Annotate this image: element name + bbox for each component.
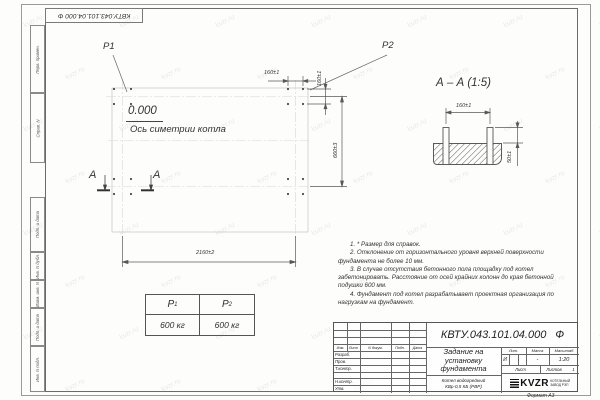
tb-sheet-label: Лист bbox=[501, 365, 540, 373]
tb-row-tkontr: Т.контр. bbox=[335, 365, 360, 372]
section-letter-left: А bbox=[89, 169, 96, 181]
tb-col-ndokum: N докум. bbox=[360, 344, 391, 351]
margin-box-inv-dubl: Инв. N дубл. bbox=[30, 252, 45, 280]
load-table-header-p2: P2 bbox=[200, 295, 254, 315]
tb-col-list: Лист bbox=[347, 344, 360, 351]
load-table: P1 P2 600 кг 600 кг bbox=[145, 294, 255, 336]
tb-mass-value: - bbox=[526, 354, 549, 365]
margin-label: Справ. N bbox=[35, 119, 40, 137]
note-1: 1. * Размер для справок. bbox=[338, 241, 580, 249]
tb-col-data: Дата bbox=[409, 344, 426, 351]
concrete-pad-hatched bbox=[433, 143, 502, 165]
kvzr-logo-text: KVZR bbox=[520, 378, 548, 389]
tb-doc-title-line: фундамента bbox=[440, 365, 486, 374]
margin-label: Подп. и дата bbox=[35, 211, 40, 238]
tb-sheets-label: Листов bbox=[540, 365, 568, 373]
tb-lit-value: И bbox=[501, 354, 509, 365]
tb-product-line: КВр-0,5 КБ (РВР) bbox=[445, 384, 482, 390]
format-label: Формат А3 bbox=[527, 393, 554, 399]
tb-mass-header: Масса bbox=[526, 347, 549, 354]
kvzr-caption-line: ЗАВОД РЭП bbox=[550, 383, 570, 387]
note-3: 3. В случае отсутствия бетонного пола пл… bbox=[338, 266, 580, 291]
margin-label: Взам. инв. N bbox=[35, 281, 40, 306]
symmetry-axis-label: Ось симетрии котла bbox=[130, 124, 226, 135]
margin-label: Инв. N подл. bbox=[35, 356, 40, 381]
load-point-p2-label: P2 bbox=[382, 40, 394, 51]
dim-bolt-spacing-h: 160±1 bbox=[264, 70, 279, 76]
tb-doc-title: Задание на установку фундамента bbox=[426, 348, 501, 374]
load-table-header-p1: P1 bbox=[146, 295, 200, 315]
drawing-sheet: kvzr.rukvzr.rukvzr.rukvzr.rukvzr.rukvzr.… bbox=[0, 0, 600, 400]
tb-row-prov: Пров. bbox=[335, 358, 360, 365]
level-mark: 0.000 bbox=[128, 105, 157, 117]
margin-box-sprav-n: Справ. N bbox=[30, 93, 45, 163]
dim-section-bolt-height: 50±1 bbox=[507, 151, 513, 163]
margin-box-perv-primen: Перв. примен. bbox=[30, 25, 45, 93]
top-designation-text: КВТУ.043.101.04.000 Ф bbox=[58, 12, 130, 19]
tb-col-podp: Подп. bbox=[391, 344, 409, 351]
tb-designation: КВТУ.043.101.04.000 Ф bbox=[426, 324, 579, 346]
tb-company-logo: KVZR КОТЕЛЬНЫЙ ЗАВОД РЭП bbox=[501, 373, 579, 393]
dim-section-bolt-spacing: 160±1 bbox=[456, 103, 471, 109]
p-sub: 1 bbox=[174, 302, 177, 308]
tb-product-name: Котел водогрейный КВр-0,5 КБ (РВР) bbox=[426, 376, 501, 392]
margin-label: Инв. N дубл. bbox=[35, 254, 40, 279]
note-2: 2. Отклонение от горизонтального уровня … bbox=[338, 249, 580, 266]
section-view-title: А – А (1:5) bbox=[436, 77, 491, 89]
margin-box-podp-data-1: Подп. и дата bbox=[30, 197, 45, 252]
margin-box-inv-podl: Инв. N подл. bbox=[30, 346, 45, 392]
tb-scale-value: 1:20 bbox=[549, 354, 579, 365]
dim-col-spacing: 2160±2 bbox=[196, 250, 214, 256]
title-block: Изм. Лист N докум. Подп. Дата Разраб. Пр… bbox=[333, 322, 578, 392]
tb-col-izm: Изм. bbox=[334, 344, 347, 351]
load-table-value-p2: 600 кг bbox=[200, 315, 254, 335]
section-letter-right: А bbox=[153, 169, 160, 181]
tb-sheets-value: 1 bbox=[568, 365, 579, 373]
tb-row-razrab: Разраб. bbox=[335, 351, 360, 358]
top-designation-box: КВТУ.043.101.04.000 Ф bbox=[45, 8, 143, 23]
note-4: 4. Фундамент под котел разрабатывает про… bbox=[338, 291, 580, 308]
margin-box-vzam-inv: Взам. инв. N bbox=[30, 280, 45, 308]
dim-row-spacing: 660±3 bbox=[333, 143, 339, 158]
tb-lit-header: Лит. bbox=[501, 347, 526, 354]
load-point-p1-label: P1 bbox=[103, 41, 115, 52]
tb-row-utv: Утв. bbox=[335, 385, 360, 392]
margin-label: Перв. примен. bbox=[35, 45, 40, 74]
kvzr-logo-caption: КОТЕЛЬНЫЙ ЗАВОД РЭП bbox=[550, 379, 570, 387]
dim-bolt-spacing-v: 160±1 bbox=[317, 71, 323, 86]
tb-scale-header: Масштаб bbox=[549, 347, 579, 354]
margin-box-podp-data-2: Подп. и дата bbox=[30, 308, 45, 346]
p-base: P bbox=[167, 299, 174, 310]
p-base: P bbox=[222, 299, 229, 310]
notes-block: 1. * Размер для справок. 2. Отклонение о… bbox=[338, 241, 580, 307]
load-table-value-p1: 600 кг bbox=[146, 315, 200, 335]
margin-label: Подп. и дата bbox=[35, 314, 40, 341]
tb-row-nkontr: Н.контр. bbox=[335, 378, 360, 385]
kvzr-logo-icon bbox=[510, 379, 519, 388]
p-sub: 2 bbox=[229, 302, 232, 308]
